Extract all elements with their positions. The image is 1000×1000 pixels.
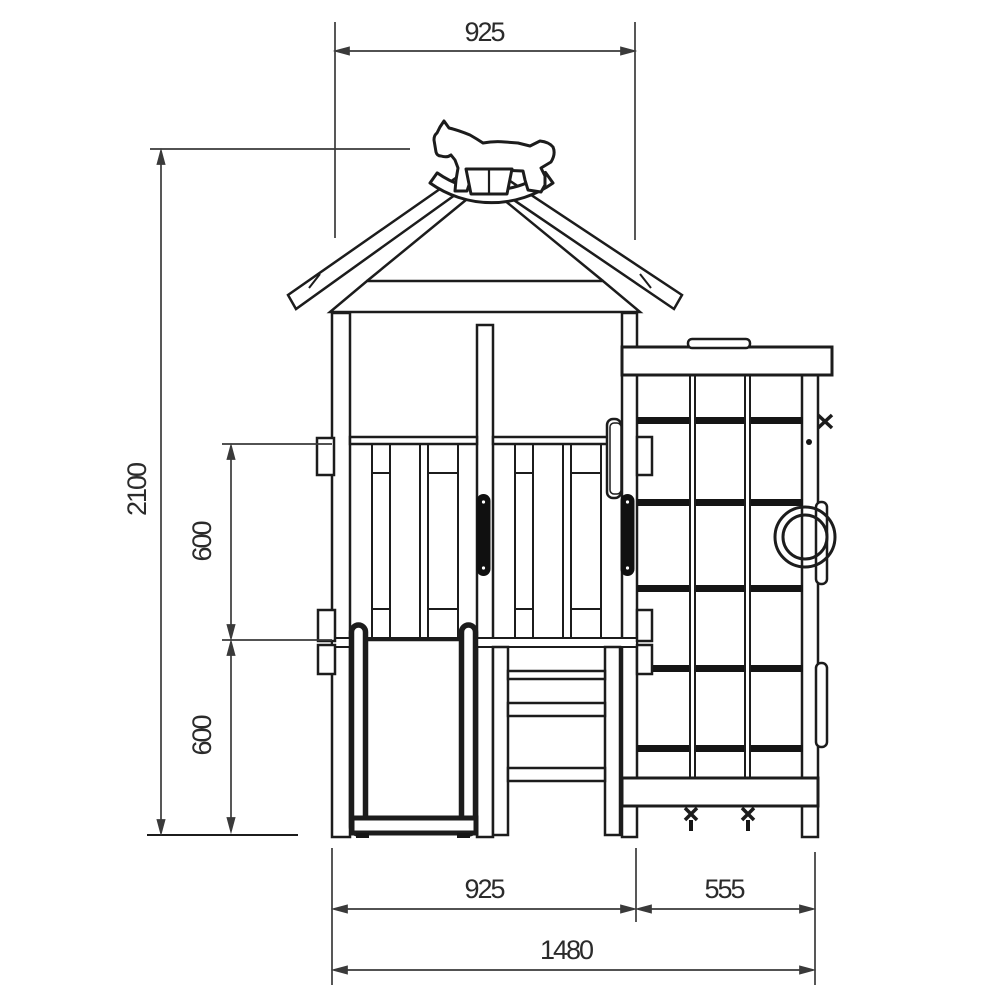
slide-rail-right xyxy=(462,625,476,834)
bolt-dot xyxy=(806,439,812,445)
slide-bed xyxy=(366,640,461,818)
access-ladder xyxy=(493,647,620,835)
climbing-grid-upright-2 xyxy=(745,375,750,778)
module-bottom-board xyxy=(622,778,818,806)
label-overall-width: 1480 xyxy=(540,935,593,965)
module-step-block-top xyxy=(637,437,652,475)
label-tower-width: 925 xyxy=(464,874,504,904)
anchor-pin-1 xyxy=(689,820,693,831)
right-panel-slats xyxy=(515,444,601,638)
grab-handles xyxy=(477,494,635,576)
module-top-cap xyxy=(688,339,750,348)
left-post-bracket-mid xyxy=(318,610,335,641)
dimension-rail-spacings xyxy=(222,444,332,831)
ladder-rung-1 xyxy=(508,671,605,679)
label-lower-rail-spacing: 600 xyxy=(187,715,217,755)
roof-fascia-board xyxy=(330,281,640,312)
ladder-rail-right xyxy=(605,647,620,835)
climbing-grid-bars xyxy=(637,417,803,752)
handle-center-post xyxy=(477,494,491,576)
ladder-rail-left xyxy=(493,647,508,835)
handle-module-post xyxy=(621,494,635,576)
label-upper-rail-spacing: 600 xyxy=(187,521,217,561)
slide-rail-left xyxy=(352,625,366,834)
rocking-horse-finial xyxy=(430,121,554,203)
label-overall-height: 2100 xyxy=(122,463,152,516)
climbing-module xyxy=(607,339,835,837)
playhouse-elevation-drawing: 925 2100 600 600 925 555 1480 xyxy=(0,0,1000,1000)
module-step-block-mid xyxy=(637,610,652,641)
slide xyxy=(352,625,477,838)
module-top-board xyxy=(622,347,832,375)
side-handle-strip xyxy=(816,663,827,747)
tower-left-post xyxy=(332,313,350,837)
ladder-rung-2 xyxy=(508,703,605,716)
climbing-grid-upright-1 xyxy=(690,375,695,778)
dimension-roof-width xyxy=(335,22,635,240)
door-board-inner xyxy=(610,423,621,494)
slide-foot-left xyxy=(356,833,369,838)
label-side-module-width: 555 xyxy=(704,874,744,904)
left-post-bracket-low xyxy=(318,645,335,674)
ladder-rung-3 xyxy=(508,768,605,781)
anchor-pin-2 xyxy=(746,820,750,831)
tower-center-post xyxy=(477,325,493,837)
slide-foot-bar xyxy=(352,818,476,833)
playhouse-structure xyxy=(147,121,835,838)
module-step-block-low xyxy=(637,645,652,674)
left-panel-top-rail xyxy=(350,437,477,444)
left-panel-slats xyxy=(372,444,458,638)
right-panel-top-rail xyxy=(493,437,620,444)
drawing-sheet: 925 2100 600 600 925 555 1480 xyxy=(0,0,1000,1000)
label-roof-width: 925 xyxy=(464,17,504,47)
slide-foot-right xyxy=(457,833,470,838)
